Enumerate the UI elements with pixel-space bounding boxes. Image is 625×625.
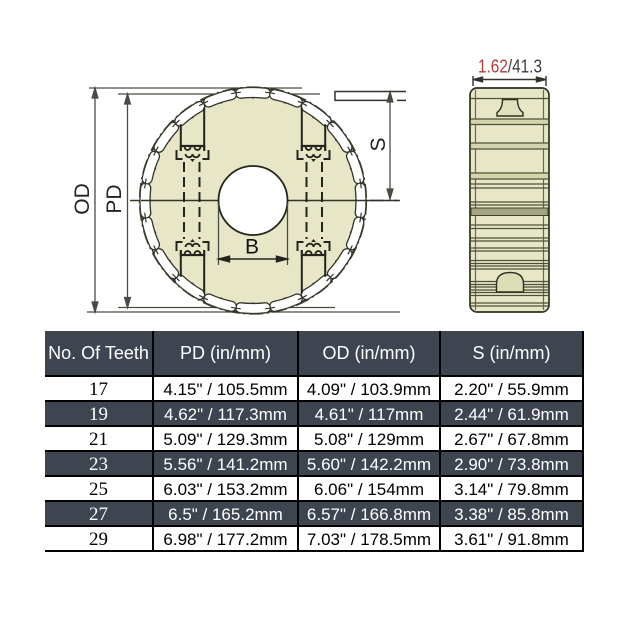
svg-text:1.62/41.3: 1.62/41.3 bbox=[478, 57, 542, 77]
svg-text:S: S bbox=[367, 137, 390, 151]
svg-text:B: B bbox=[245, 236, 259, 259]
svg-text:PD: PD bbox=[103, 184, 126, 213]
svg-text:OD: OD bbox=[71, 183, 94, 215]
